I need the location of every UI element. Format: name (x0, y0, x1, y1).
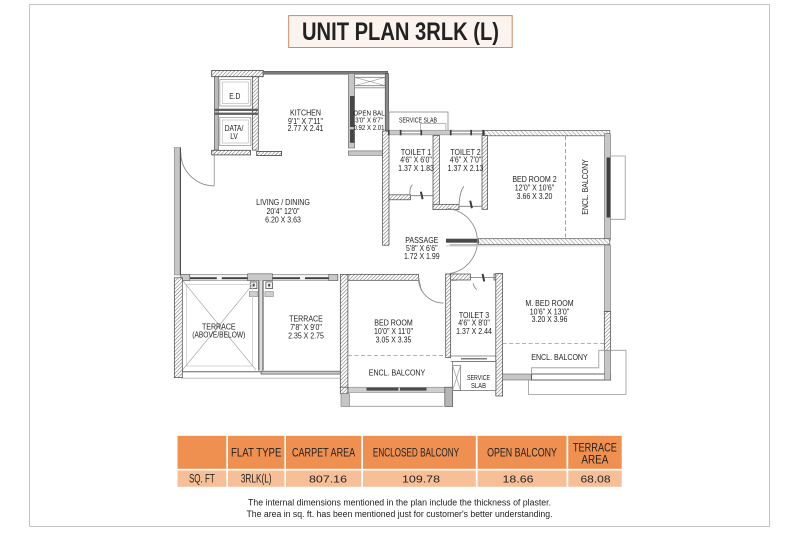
svg-text:6.20 X 3.63: 6.20 X 3.63 (265, 216, 301, 225)
svg-text:ENCL. BALCONY: ENCL. BALCONY (531, 352, 588, 362)
svg-text:OPEN BALCONY: OPEN BALCONY (487, 448, 557, 460)
svg-text:SQ. FT: SQ. FT (189, 473, 215, 485)
svg-text:CARPET AREA: CARPET AREA (292, 448, 356, 460)
svg-text:LV: LV (230, 132, 238, 141)
svg-text:AREA: AREA (581, 455, 608, 467)
svg-text:18.66: 18.66 (503, 474, 535, 485)
svg-text:ENCL. BALCONY: ENCL. BALCONY (581, 159, 590, 215)
svg-text:E.D: E.D (229, 92, 240, 101)
svg-text:BED ROOM: BED ROOM (374, 318, 412, 328)
svg-text:ENCLOSED BALCONY: ENCLOSED BALCONY (373, 448, 459, 460)
svg-text:3.66 X 3.20: 3.66 X 3.20 (517, 192, 553, 201)
svg-text:1.72 X 1.99: 1.72 X 1.99 (404, 252, 440, 261)
svg-text:2.77 X 2.41: 2.77 X 2.41 (288, 124, 324, 133)
svg-text:UNIT PLAN 3RLK (L): UNIT PLAN 3RLK (L) (302, 18, 499, 46)
svg-text:BED ROOM 2: BED ROOM 2 (512, 174, 557, 184)
svg-text:3.20 X 3.96: 3.20 X 3.96 (532, 315, 568, 324)
svg-text:109.78: 109.78 (402, 474, 441, 485)
svg-text:The internal dimensions mentio: The internal dimensions mentioned in the… (248, 498, 551, 508)
svg-text:807.16: 807.16 (309, 474, 348, 485)
svg-text:1.37 X 1.83: 1.37 X 1.83 (398, 164, 434, 173)
svg-text:(ABOVE/BELOW): (ABOVE/BELOW) (192, 331, 245, 340)
svg-text:SLAB: SLAB (471, 381, 486, 390)
svg-text:LIVING / DINING: LIVING / DINING (256, 197, 310, 207)
svg-text:1.37 X 2.44: 1.37 X 2.44 (456, 327, 492, 336)
svg-text:ENCL. BALCONY: ENCL. BALCONY (369, 368, 426, 378)
svg-text:SERVICE SLAB: SERVICE SLAB (399, 116, 437, 125)
svg-text:1.37 X 2.13: 1.37 X 2.13 (448, 164, 484, 173)
svg-text:2.35 X 2.75: 2.35 X 2.75 (288, 332, 324, 341)
svg-text:FLAT TYPE: FLAT TYPE (231, 448, 282, 460)
svg-text:TERRACE: TERRACE (289, 314, 323, 324)
svg-text:The area in sq. ft. has been m: The area in sq. ft. has been mentioned j… (247, 509, 553, 519)
svg-text:M. BED ROOM: M. BED ROOM (525, 298, 573, 308)
svg-text:3.05 X 3.35: 3.05 X 3.35 (376, 336, 412, 345)
svg-text:0.92 X 2.01: 0.92 X 2.01 (354, 123, 385, 132)
svg-text:3RLK(L): 3RLK(L) (241, 473, 272, 485)
svg-text:68.08: 68.08 (581, 474, 612, 485)
svg-text:4'6" X 8'0": 4'6" X 8'0" (458, 319, 490, 328)
svg-text:TERRACE: TERRACE (573, 442, 617, 454)
